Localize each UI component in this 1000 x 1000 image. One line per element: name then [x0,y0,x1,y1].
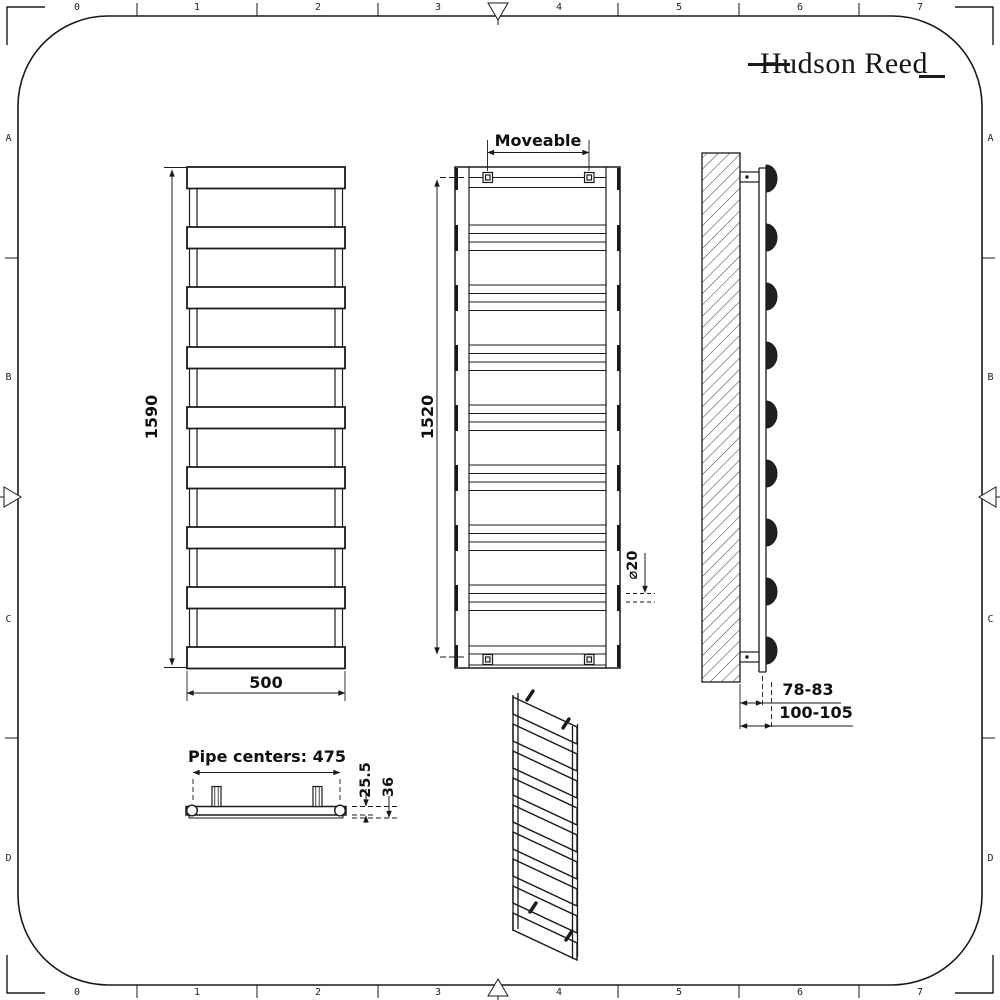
dim-label-pipe-centers: Pipe centers: 475 [167,747,367,765]
iso-bars [513,697,577,960]
ruler-bottom-2: 2 [310,986,326,999]
ruler-top-6: 6 [792,1,808,14]
ruler-bottom-3: 3 [430,986,446,999]
dim-label-rear-height: 1520 [418,372,436,462]
top-view-body [186,787,346,819]
ruler-top-5: 5 [671,1,687,14]
side-view [702,153,853,729]
drawing-sheet: Hudson Reed 1590 500 Moveable 1520 ⌀20 7… [0,0,1000,1000]
dim-label-bar-depth: 25.5 [358,750,374,810]
dim-label-front-width: 500 [226,673,306,691]
ruler-right-a: A [984,131,997,145]
dim-label-tube-diameter: ⌀20 [625,535,641,595]
ruler-top-4: 4 [551,1,567,14]
front-view-bars [187,167,345,669]
dim-label-moveable: Moveable [488,131,588,149]
ruler-top-1: 1 [189,1,205,14]
ruler-top-7: 7 [912,1,928,14]
center-arrow-top [488,3,508,25]
side-view-rail [759,168,766,672]
isometric-view [513,691,578,960]
ruler-bottom-1: 1 [189,986,205,999]
ruler-top-2: 2 [310,1,326,14]
dim-label-wall-to-bracket: 78-83 [758,680,858,698]
ruler-top-0: 0 [69,1,85,14]
ruler-bottom-4: 4 [551,986,567,999]
logo-right-bar [919,75,945,78]
front-view [164,167,345,701]
ruler-left-b: B [2,370,15,384]
side-view-bar-ends [766,165,777,664]
ruler-left-d: D [2,851,15,865]
ruler-right-c: C [984,612,997,626]
technical-drawing [0,0,1000,1000]
ruler-bottom-0: 0 [69,986,85,999]
dim-label-front-height: 1590 [142,372,160,462]
ruler-left-a: A [2,131,15,145]
logo-left-bar [748,63,790,66]
dim-label-total-depth: 36 [381,757,397,817]
ruler-top-3: 3 [430,1,446,14]
ruler-right-d: D [984,851,997,865]
ruler-left-c: C [2,612,15,626]
ruler-bottom-6: 6 [792,986,808,999]
ruler-right-b: B [984,370,997,384]
rear-view [437,140,655,668]
center-arrow-bottom [488,979,508,1000]
dim-front-height [164,168,186,668]
ruler-bottom-5: 5 [671,986,687,999]
ruler-bottom-7: 7 [912,986,928,999]
wall-section [702,153,740,682]
dim-label-wall-to-front: 100-105 [756,703,876,721]
side-view-brackets [740,172,759,662]
